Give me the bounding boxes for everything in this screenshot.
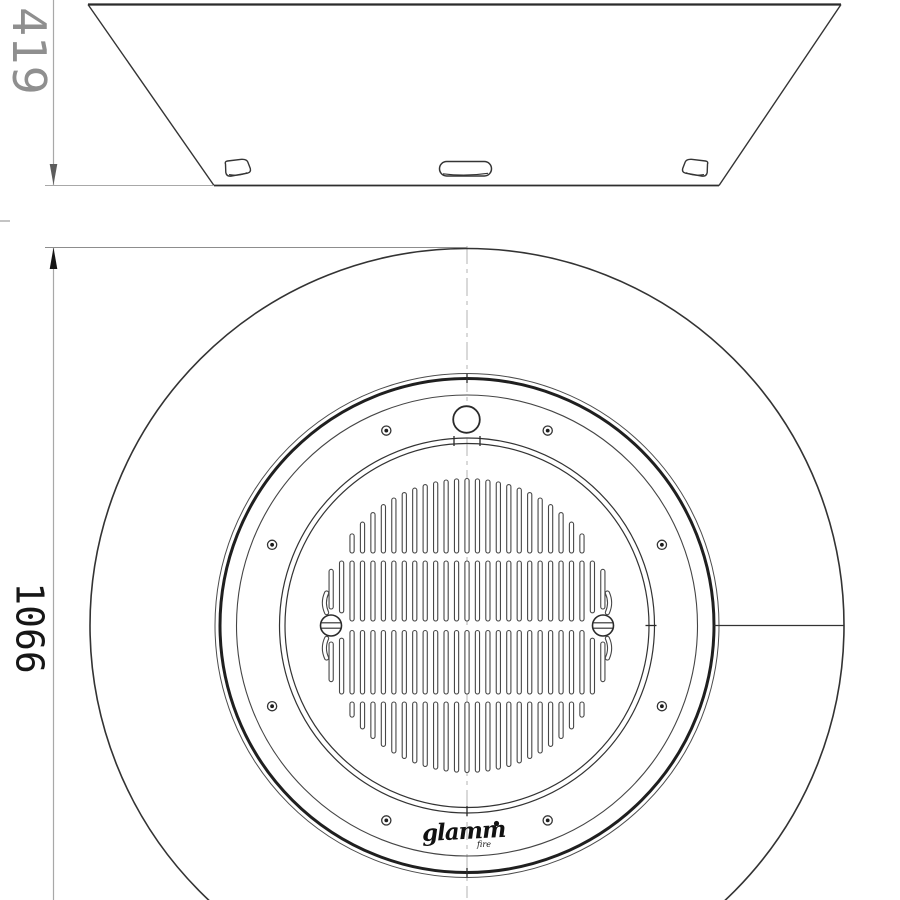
grille-slot bbox=[486, 480, 490, 553]
grille-slot bbox=[360, 561, 364, 621]
grille-slot bbox=[454, 631, 458, 695]
bolt-center-dot bbox=[384, 429, 388, 433]
drawing-sheet: 419 glamm fire bbox=[0, 0, 900, 900]
grille-slot bbox=[475, 561, 479, 621]
grille-slot bbox=[434, 702, 438, 769]
grille-slot bbox=[371, 561, 375, 621]
bolt-center-dot bbox=[270, 543, 274, 547]
foot-slot-right bbox=[683, 159, 708, 176]
bolt-center-dot bbox=[270, 704, 274, 708]
grille-slot bbox=[423, 485, 427, 553]
grille-slot bbox=[538, 631, 542, 695]
grille-slot bbox=[434, 561, 438, 621]
grille-slot bbox=[392, 561, 396, 621]
grille-slot bbox=[381, 561, 385, 621]
grille-slot bbox=[371, 631, 375, 695]
grille-slot bbox=[444, 561, 448, 621]
grille-slot bbox=[360, 702, 364, 729]
grille-slot bbox=[580, 631, 584, 695]
grille-slot bbox=[413, 488, 417, 553]
grille-slot bbox=[486, 631, 490, 695]
grille-slot bbox=[360, 522, 364, 553]
grille-slot bbox=[496, 702, 500, 769]
grille-slot bbox=[423, 631, 427, 695]
grille-slot bbox=[350, 631, 354, 695]
grille-slot bbox=[496, 482, 500, 553]
grille-slot bbox=[496, 631, 500, 695]
grille-slot bbox=[559, 513, 563, 553]
grille-slot bbox=[580, 702, 584, 717]
grille-slot bbox=[413, 702, 417, 763]
grille-slot bbox=[444, 480, 448, 553]
grille-slot bbox=[454, 561, 458, 621]
grille-slot bbox=[381, 702, 385, 746]
grille-slot bbox=[413, 631, 417, 695]
dimension-419: 419 bbox=[2, 0, 214, 186]
grille-slot bbox=[392, 702, 396, 753]
grille-slot bbox=[392, 498, 396, 553]
grille-slot bbox=[569, 561, 573, 621]
brand-logo-text: glamm bbox=[421, 816, 506, 847]
grille-slot bbox=[402, 561, 406, 621]
grille-slot bbox=[475, 631, 479, 695]
grille-slot bbox=[528, 493, 532, 553]
grille-slot bbox=[528, 561, 532, 621]
top-view: glamm fire bbox=[90, 246, 844, 900]
grille-slot bbox=[454, 702, 458, 772]
dimension-419-arrow-down bbox=[50, 164, 58, 185]
grille-slot bbox=[517, 561, 521, 621]
bolt-center-dot bbox=[660, 704, 664, 708]
brand-logo: glamm fire bbox=[421, 816, 506, 849]
foot-slot-left bbox=[225, 159, 250, 176]
grille-slot bbox=[507, 702, 511, 766]
grille-slot bbox=[329, 642, 333, 682]
grille-slot bbox=[486, 702, 490, 771]
grille-slot bbox=[371, 702, 375, 738]
dimension-1066: 1066 bbox=[7, 248, 467, 900]
grille-slot bbox=[340, 638, 344, 694]
screw-head bbox=[593, 615, 614, 636]
grille-slot bbox=[528, 631, 532, 695]
grille-slot bbox=[402, 493, 406, 553]
grille-slot bbox=[465, 479, 469, 554]
dimension-1066-arrow-up bbox=[50, 248, 58, 270]
bolt-center-dot bbox=[546, 819, 550, 823]
grille-slot bbox=[559, 702, 563, 738]
grille-slot bbox=[444, 702, 448, 771]
dimension-1066-label: 1066 bbox=[7, 582, 51, 674]
grille-slot bbox=[569, 631, 573, 695]
grille-slot bbox=[538, 498, 542, 553]
grille-slot bbox=[465, 702, 469, 773]
grille-slot bbox=[590, 638, 594, 694]
dimension-419-label: 419 bbox=[2, 7, 56, 95]
grille-slot bbox=[381, 631, 385, 695]
grille-slot bbox=[601, 642, 605, 682]
grille-slot bbox=[371, 513, 375, 553]
grille-slot bbox=[402, 631, 406, 695]
grille-slot bbox=[475, 479, 479, 553]
ignition-hole bbox=[453, 406, 480, 433]
screw-head bbox=[321, 615, 342, 636]
grille-slot bbox=[475, 702, 479, 772]
grille-slot bbox=[507, 631, 511, 695]
grille-slot bbox=[517, 702, 521, 763]
side-view-left-slant-edge bbox=[88, 5, 214, 186]
grille-slot bbox=[434, 482, 438, 553]
grille-slot bbox=[444, 631, 448, 695]
grille-slot bbox=[496, 561, 500, 621]
side-view bbox=[88, 5, 841, 186]
grille-slot bbox=[423, 561, 427, 621]
grille-slot bbox=[507, 561, 511, 621]
brand-logo-subtext: fire bbox=[476, 840, 491, 849]
grille-slot bbox=[549, 702, 553, 746]
grille-slot bbox=[423, 702, 427, 766]
bolt-center-dot bbox=[384, 819, 388, 823]
grille-slot bbox=[580, 534, 584, 553]
side-view-right-slant-edge bbox=[719, 5, 841, 186]
grille-slot bbox=[517, 488, 521, 553]
grille-slot bbox=[360, 631, 364, 695]
reference-ticks bbox=[454, 374, 657, 877]
grille-slot bbox=[350, 561, 354, 621]
grille-slot bbox=[601, 569, 605, 609]
grille-slot bbox=[538, 702, 542, 753]
grille-slot bbox=[549, 561, 553, 621]
grille-slot bbox=[402, 702, 406, 758]
grille-slot bbox=[413, 561, 417, 621]
grille-slot bbox=[569, 522, 573, 553]
grille-slot bbox=[434, 631, 438, 695]
grille-slot bbox=[454, 479, 458, 553]
grille-slot bbox=[486, 561, 490, 621]
brand-logo-dot bbox=[494, 821, 499, 826]
bolt-center-dot bbox=[660, 543, 664, 547]
grille-slot bbox=[350, 702, 354, 717]
grille-slot bbox=[465, 561, 469, 621]
technical-drawing-canvas: 419 glamm fire bbox=[0, 0, 900, 900]
grille-slot bbox=[569, 702, 573, 729]
grille-slot bbox=[559, 561, 563, 621]
grille-slot bbox=[340, 561, 344, 613]
grille-slot bbox=[549, 631, 553, 695]
grille-slot bbox=[392, 631, 396, 695]
grille-slot bbox=[559, 631, 563, 695]
grille-slot bbox=[549, 505, 553, 553]
grille-slot bbox=[507, 485, 511, 553]
grille-slot bbox=[590, 561, 594, 613]
grille bbox=[324, 479, 609, 773]
grille-slot bbox=[329, 569, 333, 609]
grille-slot bbox=[465, 631, 469, 695]
grille-slot bbox=[580, 561, 584, 621]
grille-slot bbox=[528, 702, 532, 758]
grille-slot bbox=[538, 561, 542, 621]
bolt-center-dot bbox=[546, 429, 550, 433]
grille-slot bbox=[381, 505, 385, 553]
grille-slot bbox=[350, 534, 354, 553]
grille-slot bbox=[517, 631, 521, 695]
